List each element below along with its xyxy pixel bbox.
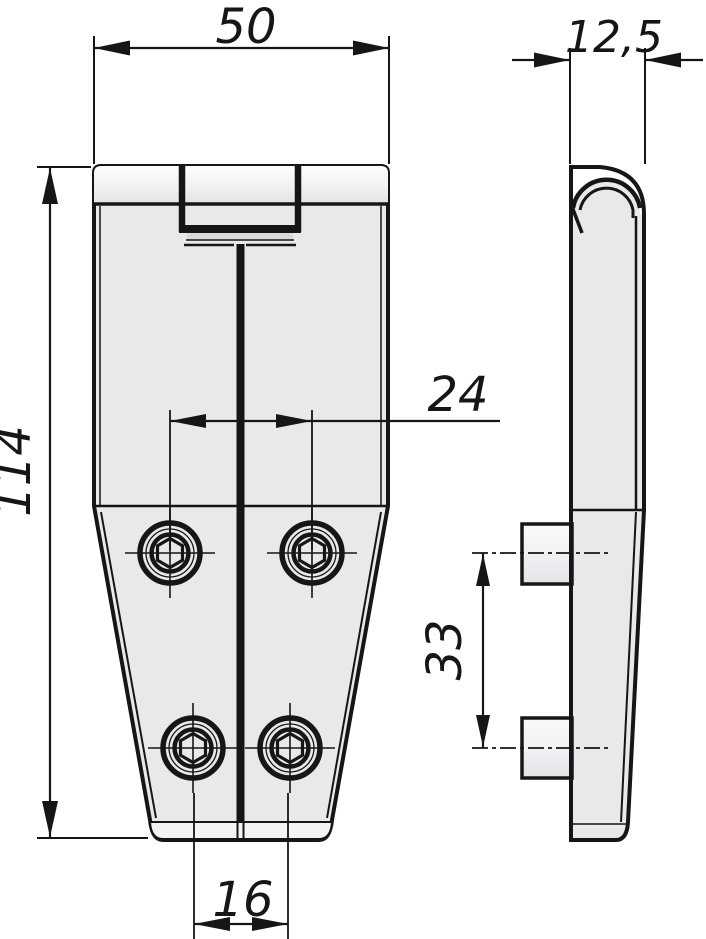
dim-lower-hole-spacing-label: 16 (212, 872, 273, 928)
front-view (94, 166, 388, 840)
technical-drawing: 50 12,5 114 24 (0, 0, 706, 939)
arrowhead-down-icon (42, 801, 58, 837)
arrowhead-up-icon (476, 554, 490, 586)
side-pin-top (522, 524, 572, 584)
center-gap (237, 244, 245, 821)
dim-width: 50 (94, 0, 389, 164)
arrowhead-up-icon (42, 168, 58, 204)
arrowhead-left-icon (94, 41, 130, 56)
dim-thickness-label: 12,5 (565, 12, 663, 63)
arrowhead-right-icon (353, 41, 389, 56)
dim-pin-spacing-label: 33 (417, 619, 473, 680)
dim-width-label: 50 (215, 0, 276, 55)
front-top-band (94, 166, 388, 203)
dim-pin-spacing: 33 (417, 553, 490, 748)
side-view (472, 167, 644, 840)
technical-drawing-page: 50 12,5 114 24 (0, 0, 706, 939)
dim-thickness: 12,5 (512, 12, 703, 164)
dim-upper-hole-spacing-label: 24 (427, 367, 488, 423)
arrowhead-down-icon (476, 715, 490, 747)
tab-shadow-strip (187, 233, 293, 240)
dim-height-label: 114 (0, 425, 42, 517)
front-bottom-chamfer-band (151, 822, 331, 838)
